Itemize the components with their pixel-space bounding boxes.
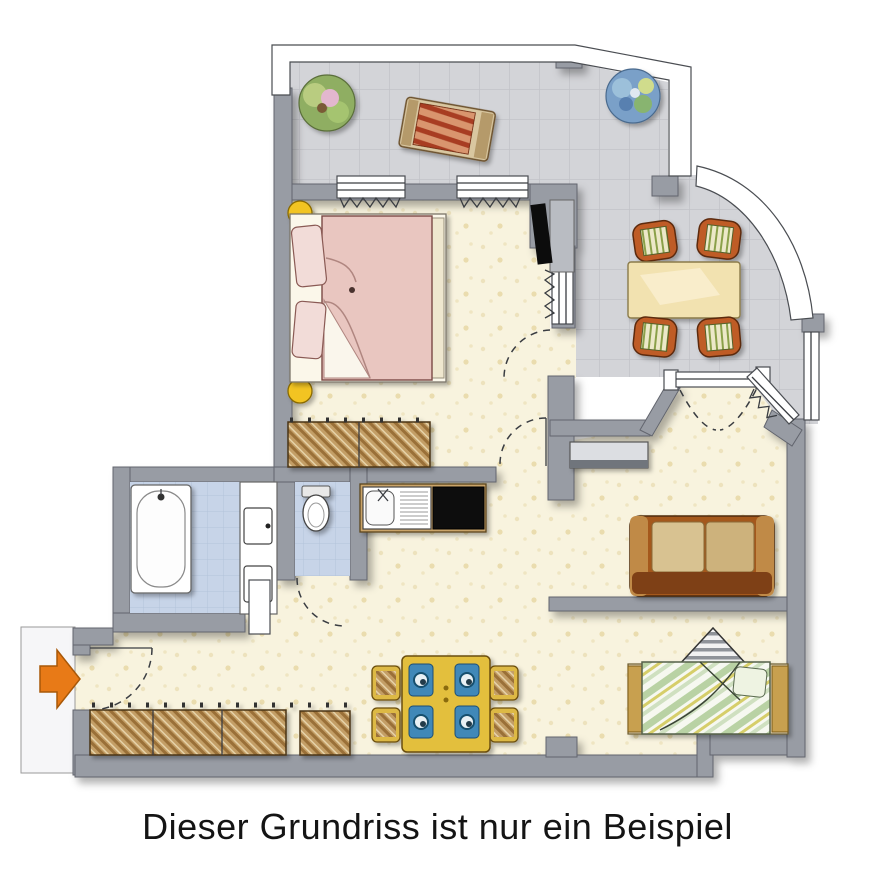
place-setting [409, 706, 433, 738]
daybed [628, 662, 788, 734]
pillow [291, 225, 327, 288]
kitchen-counter [360, 484, 486, 532]
flower-bush [606, 69, 660, 123]
side-glazing [804, 332, 819, 420]
outside-landing [21, 627, 75, 773]
bathroom [130, 482, 277, 634]
doorway-floor-patch [550, 328, 576, 378]
window [337, 176, 405, 198]
stove [433, 487, 484, 529]
pillow [292, 301, 327, 359]
wc-room [295, 482, 350, 576]
dining-chair [632, 219, 679, 262]
dining-chair [372, 666, 400, 700]
bathtub [131, 485, 191, 593]
shoe-cabinet [300, 711, 350, 755]
floorplan-page: Dieser Grundriss ist nur ein Beispiel [0, 0, 875, 875]
potted-plant [299, 75, 355, 131]
dining-chair [632, 316, 678, 358]
wardrobe [288, 420, 432, 467]
dining-chair [490, 708, 518, 742]
dining-chair [372, 708, 400, 742]
dividing-wall [549, 597, 787, 611]
sink [363, 487, 431, 529]
hall-closet [90, 705, 350, 755]
pillow [733, 666, 768, 697]
dining-chair [696, 218, 742, 261]
place-setting [409, 664, 433, 696]
sideboard [570, 442, 648, 468]
window [457, 176, 528, 198]
place-setting [455, 664, 479, 696]
bathroom-door-leaf [249, 580, 270, 634]
toilet [302, 486, 330, 531]
caption: Dieser Grundriss ist nur ein Beispiel [0, 806, 875, 848]
sofa [630, 516, 774, 596]
dining-chair [696, 316, 741, 358]
floorplan-image [0, 0, 875, 875]
dining-chair [490, 666, 518, 700]
double-bed [290, 214, 446, 382]
place-setting [455, 706, 479, 738]
